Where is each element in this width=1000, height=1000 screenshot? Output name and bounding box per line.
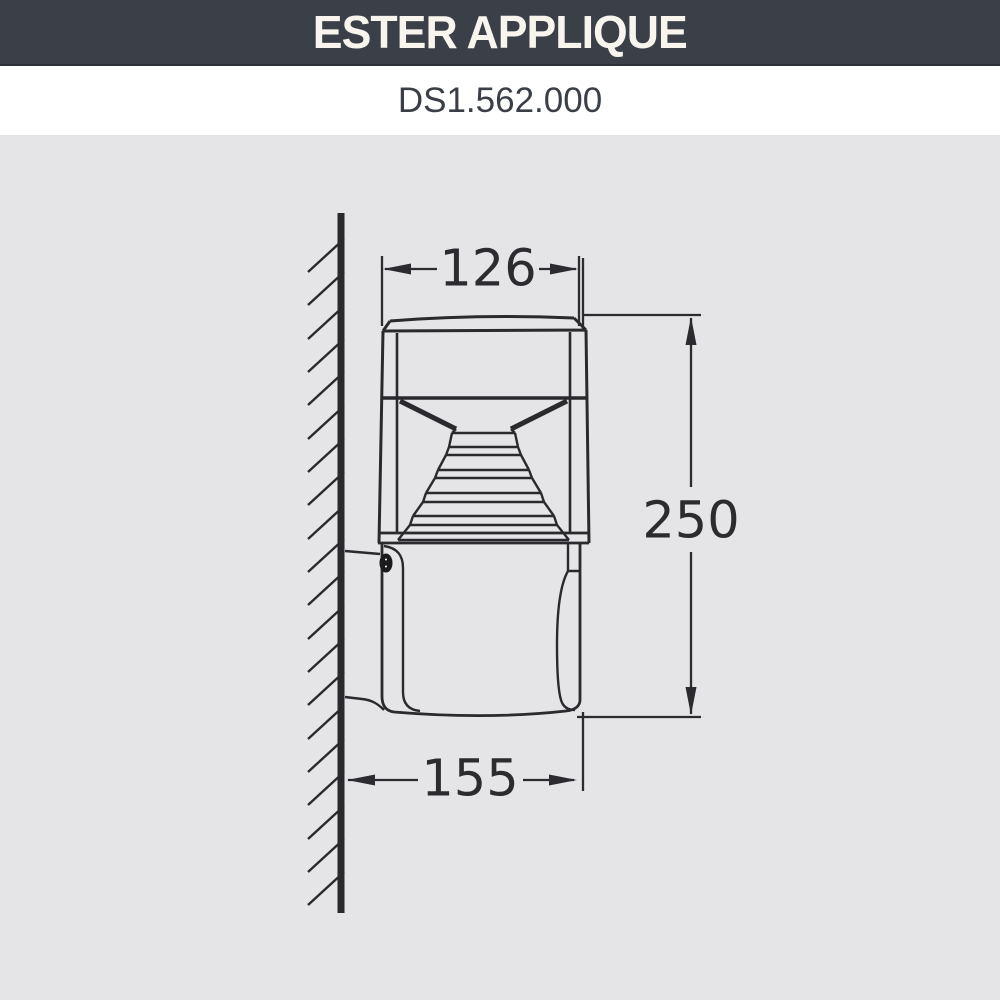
arrow-left-icon <box>347 775 375 786</box>
screw-highlight <box>385 566 387 568</box>
dimension-label-top-width: 126 <box>439 240 536 299</box>
dimension-top-width: 126 <box>382 240 579 327</box>
arrow-up-icon <box>686 317 697 345</box>
screw <box>380 554 393 573</box>
product-title: ESTER APPLIQUE <box>313 5 687 59</box>
arrow-left-icon <box>383 264 411 275</box>
technical-drawing: 126 250 155 <box>0 135 1000 1000</box>
luminaire-head <box>378 317 589 543</box>
luminaire-body <box>382 543 580 716</box>
drawing-area: 126 250 155 <box>0 135 1000 1000</box>
code-bar: DS1.562.000 <box>0 66 1000 135</box>
product-code: DS1.562.000 <box>398 81 602 121</box>
arrow-right-icon <box>549 775 577 786</box>
mounting-bracket <box>345 551 393 710</box>
arrow-right-icon <box>550 264 578 275</box>
dimension-label-overall-height: 250 <box>642 492 739 551</box>
arrow-down-icon <box>686 687 697 715</box>
reflector-funnel <box>400 401 567 429</box>
dimension-wall-projection: 155 <box>347 712 583 809</box>
screw-highlight <box>385 559 387 561</box>
dimension-overall-height: 250 <box>577 258 740 717</box>
reflector-steps <box>398 433 569 540</box>
dimension-label-wall-projection: 155 <box>421 750 518 809</box>
header-bar: ESTER APPLIQUE <box>0 0 1000 66</box>
